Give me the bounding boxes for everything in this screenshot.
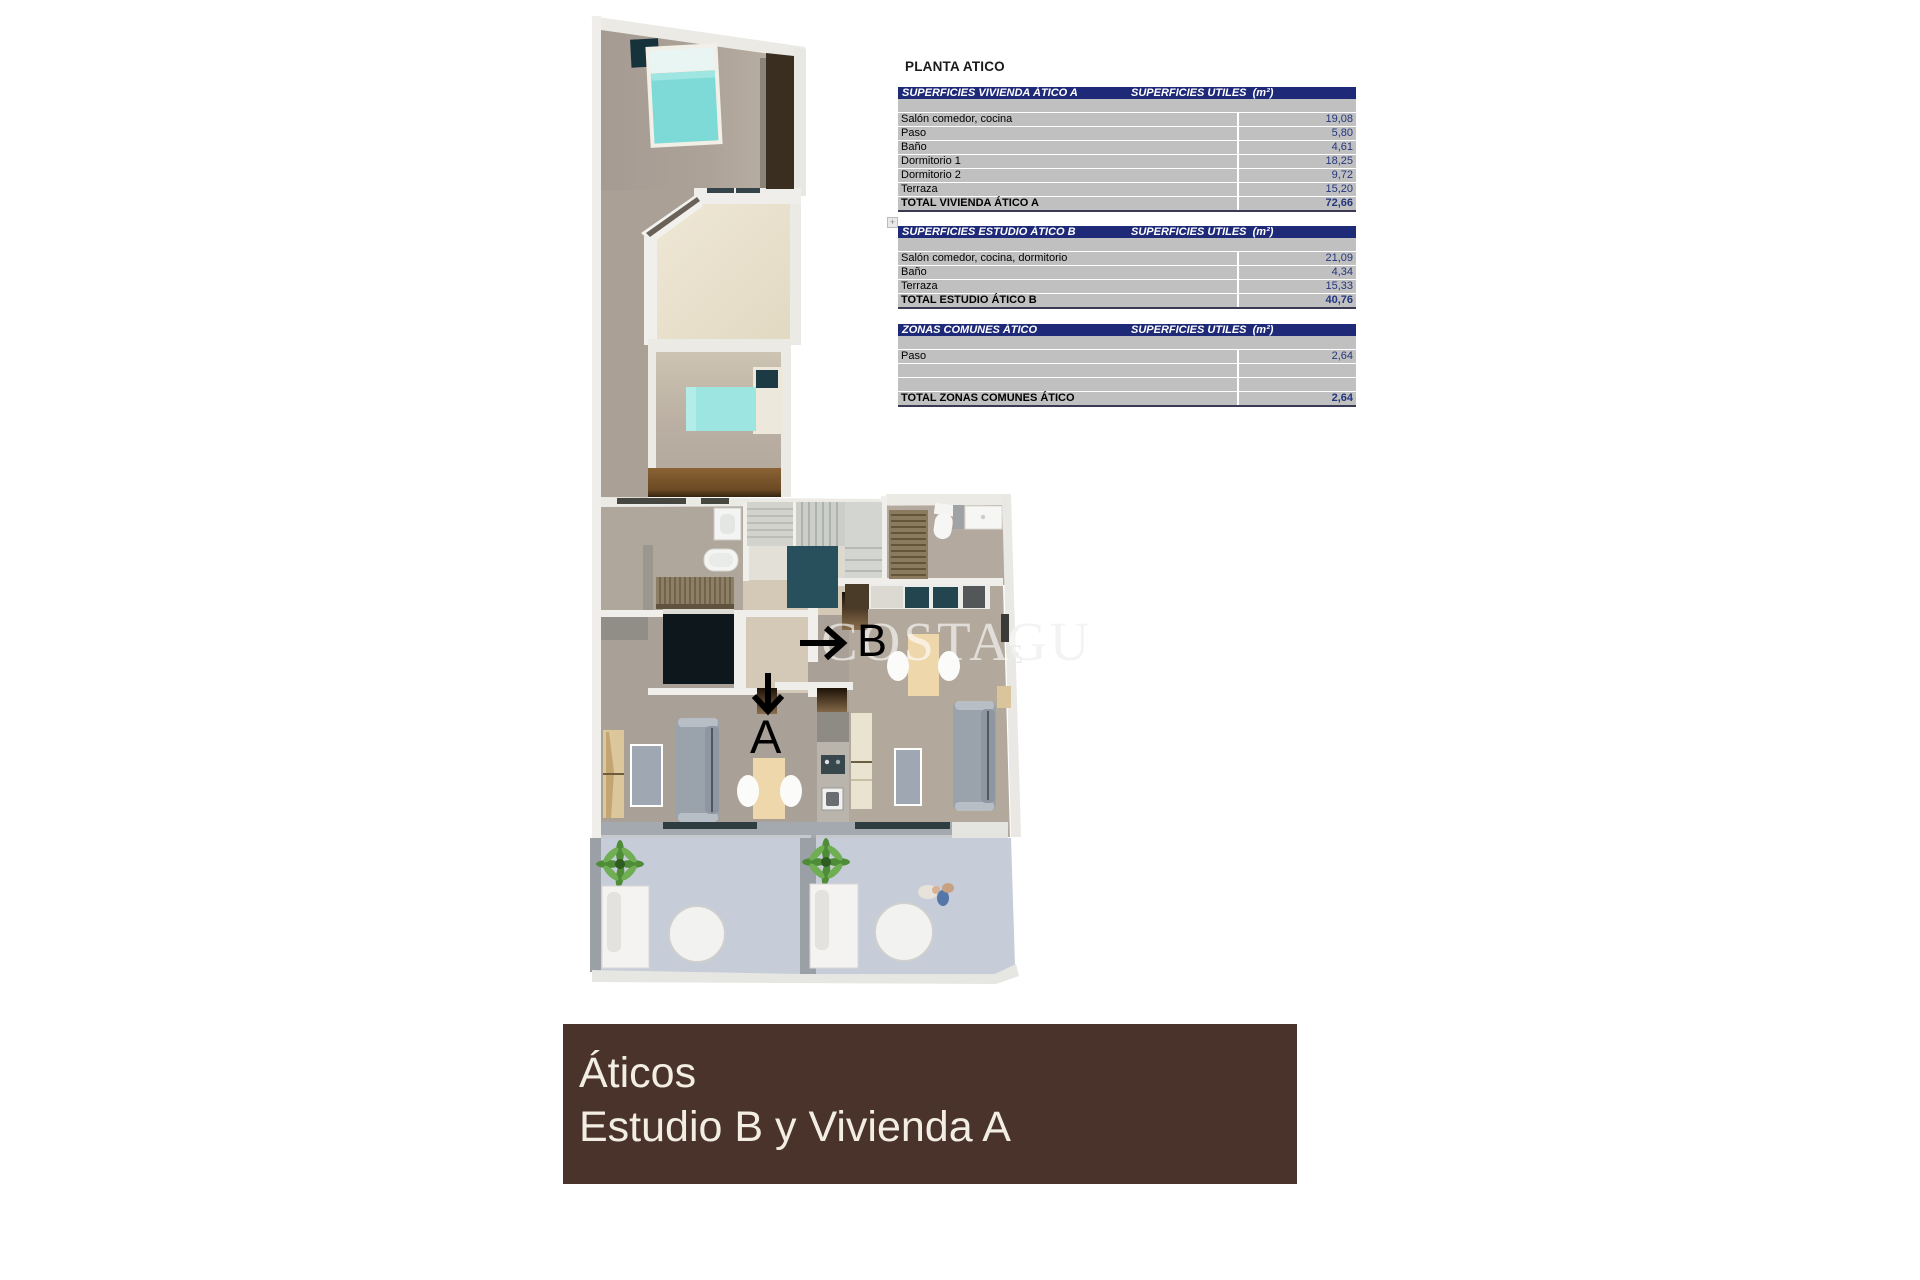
- svg-text:COSTA: COSTA: [821, 611, 1012, 672]
- svg-text:E: E: [1007, 640, 1023, 669]
- svg-text:B: B: [857, 615, 887, 666]
- svg-text:A: A: [750, 710, 782, 763]
